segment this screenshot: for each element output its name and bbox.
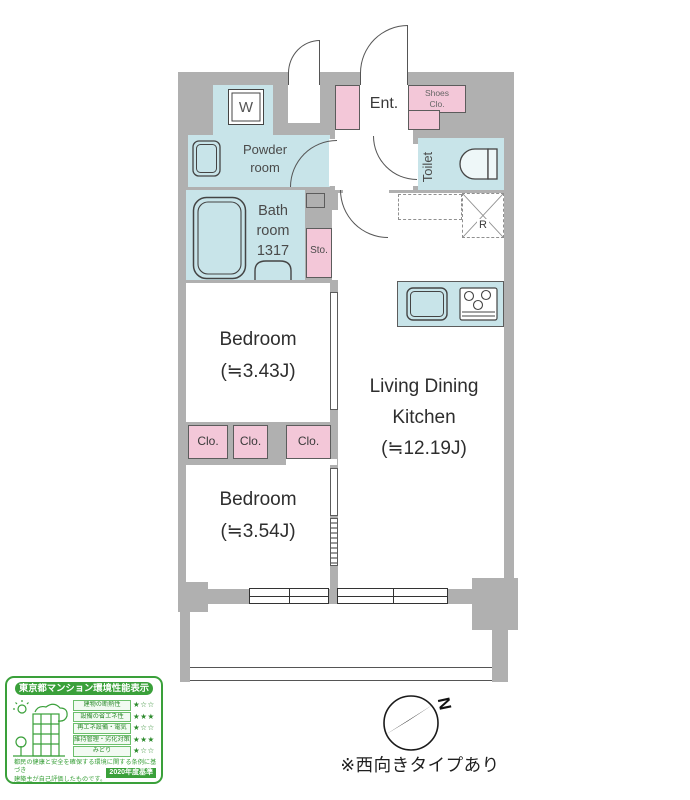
- eco-row-maintenance: 維持管理・劣化対策 ★★★: [73, 735, 161, 746]
- eco-row-greenery: みどり ★☆☆: [73, 746, 161, 757]
- compass-north-label: N: [434, 696, 455, 712]
- entrance-side: [335, 85, 360, 130]
- eco-row-stars: ★★★: [131, 735, 161, 746]
- entrance-door-swing: [360, 25, 408, 73]
- service-door-swing: [288, 40, 320, 73]
- bedroom1-door: [330, 292, 338, 410]
- entrance-label: Ent.: [360, 95, 408, 113]
- service-door-opening: [288, 72, 320, 85]
- refrigerator-letter: R: [477, 219, 489, 231]
- washer-box: W: [228, 89, 264, 125]
- balcony-rail: [190, 667, 492, 681]
- bedroom2-door: [330, 468, 338, 516]
- building-illustration-icon: [13, 700, 71, 757]
- storage-label: Sto.: [305, 245, 333, 256]
- bathroom-label: Bath room 1317: [242, 201, 304, 261]
- storage-cabinet: [306, 193, 325, 208]
- wall-right: [504, 72, 514, 582]
- compass: N: [378, 688, 470, 760]
- eco-row-energy-saving: 設備の省エネ性 ★★★: [73, 712, 161, 723]
- shoes-closet-leg: [408, 110, 440, 130]
- closet2-label: Clo.: [233, 434, 268, 448]
- closet3-label: Clo.: [286, 434, 331, 448]
- refrigerator-label: R: [462, 207, 504, 231]
- eco-row-stars: ★★★: [131, 712, 161, 723]
- eco-label-title: 東京都マンション環境性能表示: [15, 682, 153, 695]
- eco-row-label: 建物の断熱性: [73, 700, 131, 711]
- kitchen-dashed-counter: [398, 194, 462, 220]
- pillar-right-block: [472, 578, 518, 630]
- bathtub-icon: [192, 196, 248, 280]
- bedroom2-window: [249, 588, 329, 604]
- pillar-left-step: [178, 582, 208, 612]
- washer-label: W: [239, 99, 253, 116]
- eco-performance-label: 東京都マンション環境性能表示 建物の断熱性 ★☆☆ 設備の省エネ性 ★★★ 再エ…: [5, 676, 163, 784]
- eco-row-insulation: 建物の断熱性 ★☆☆: [73, 700, 161, 711]
- eco-standard-year: 2020年度基準: [106, 768, 156, 778]
- toilet-icon: [458, 146, 502, 182]
- powder-room-label: Powder room: [210, 141, 320, 176]
- eco-row-label: 設備の省エネ性: [73, 712, 131, 723]
- eco-row-label: 再エネ設備・電気: [73, 723, 131, 734]
- bedroom2-sliding-door: [330, 518, 338, 566]
- toilet-label: Toilet: [420, 145, 438, 189]
- ldk-label: Living Dining Kitchen (≒12.19J): [344, 372, 504, 464]
- kitchen-sink-icon: [406, 287, 448, 321]
- pillar-right-lower: [492, 630, 508, 682]
- bedroom1-label: Bedroom (≒3.43J): [190, 324, 326, 389]
- shoes-closet-label: Shoes Clo.: [410, 88, 464, 109]
- bath-counter-icon: [250, 258, 296, 280]
- floor-plan: R W Ent. Shoes Clo. Powder room Toilet B…: [0, 0, 690, 800]
- eco-row-stars: ★☆☆: [131, 746, 161, 757]
- entrance-door-opening: [360, 72, 408, 85]
- service-alcove: [288, 85, 320, 123]
- closet1-label: Clo.: [188, 434, 228, 448]
- eco-row-label: 維持管理・劣化対策: [73, 735, 131, 746]
- wall-top: [178, 72, 514, 85]
- eco-row-label: みどり: [73, 746, 131, 757]
- ldk-window: [337, 588, 448, 604]
- wall-left-balcony: [180, 600, 190, 682]
- stove-icon: [459, 287, 498, 321]
- eco-row-renewable: 再エネ設備・電気 ★☆☆: [73, 723, 161, 734]
- eco-row-stars: ★☆☆: [131, 700, 161, 711]
- orientation-note: ※西向きタイプあり: [330, 752, 510, 777]
- bedroom2-label: Bedroom (≒3.54J): [190, 484, 326, 549]
- eco-row-stars: ★☆☆: [131, 723, 161, 734]
